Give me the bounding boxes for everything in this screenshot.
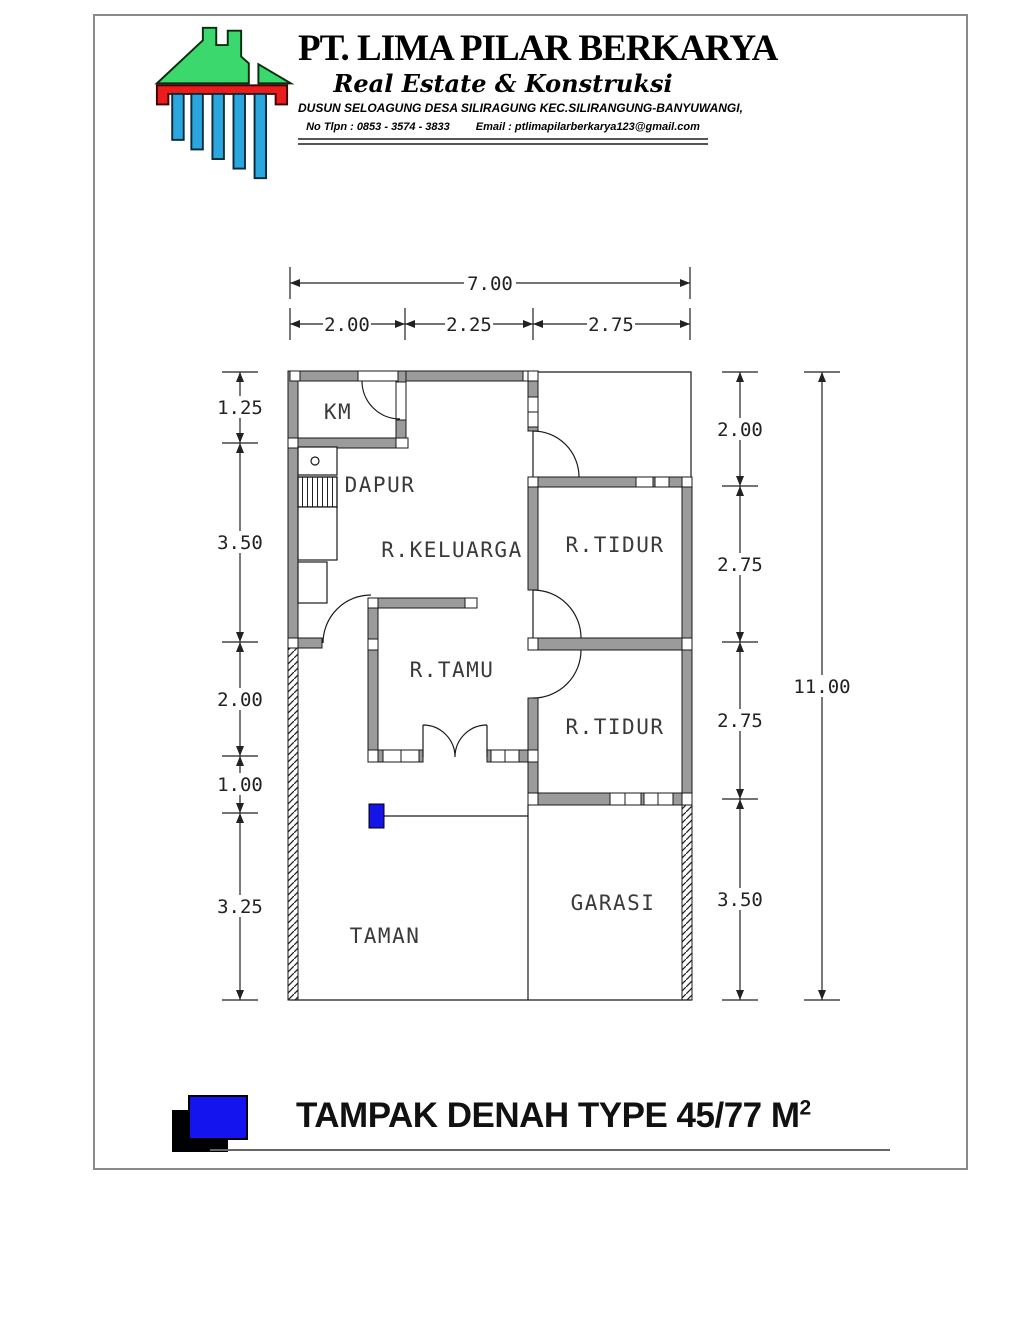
dim-top-1: 2.25	[446, 314, 492, 336]
dim-left-2: 2.00	[217, 689, 263, 711]
footer-underline	[210, 1149, 890, 1151]
km-door-opening	[396, 382, 406, 420]
room-label-taman: TAMAN	[350, 924, 421, 948]
km-door-arc	[362, 381, 400, 419]
room-label-tidur2: R.TIDUR	[565, 715, 664, 739]
back-door-arc	[533, 431, 579, 477]
company-name: PT. LIMA PILAR BERKARYA	[298, 30, 708, 69]
room-label-tamu: R.TAMU	[410, 658, 495, 682]
dim-left-4: 3.25	[217, 896, 263, 918]
dim-left-3: 1.00	[217, 774, 263, 796]
header-divider	[298, 138, 708, 145]
tidur1-door-arc	[533, 590, 581, 638]
tidur2-door-arc	[533, 650, 581, 698]
logo-roof-right	[258, 64, 291, 83]
dim-top-0: 2.00	[324, 314, 370, 336]
room-label-keluarga: R.KELUARGA	[381, 538, 522, 562]
company-phone: No Tlpn : 0853 - 3574 - 3833	[306, 121, 450, 133]
document-page: PT. LIMA PILAR BERKARYA Real Estate & Ko…	[0, 0, 1024, 1325]
room-label-km: KM	[324, 400, 352, 424]
drawing-title-superscript: 2	[800, 1096, 811, 1119]
dim-height-total: 11.00	[793, 676, 850, 698]
dim-left-0: 1.25	[217, 397, 263, 419]
door-arcs	[323, 381, 581, 757]
room-label-dapur: DAPUR	[345, 473, 416, 497]
kitchen-cabinet	[298, 562, 327, 603]
logo-roof	[157, 28, 249, 84]
hatched-walls	[288, 648, 692, 1000]
km-door-leaf	[358, 371, 398, 381]
letterhead: PT. LIMA PILAR BERKARYA Real Estate & Ko…	[298, 30, 708, 145]
entrance-double-door	[423, 725, 487, 757]
drawing-title-text: TAMPAK DENAH TYPE 45/77 M	[296, 1096, 800, 1135]
floor-plan-drawing: 7.00 2.00 2.25 2.75 1.25 3.50 2.00 1.00 …	[180, 245, 880, 1025]
wall-openings	[288, 371, 692, 805]
pillar-marker	[369, 804, 384, 828]
drawing-title: TAMPAK DENAH TYPE 45/77 M2	[296, 1096, 811, 1136]
sink-drain	[311, 457, 319, 465]
company-email: Email : ptlimapilarberkarya123@gmail.com	[476, 121, 700, 133]
walls	[288, 371, 692, 805]
dim-left-1: 3.50	[217, 532, 263, 554]
company-tagline: Real Estate & Konstruksi	[298, 69, 708, 98]
company-logo	[146, 24, 298, 182]
window	[655, 477, 669, 487]
dim-right-0: 2.00	[717, 419, 763, 441]
room-label-tidur1: R.TIDUR	[565, 533, 664, 557]
dim-top-2: 2.75	[588, 314, 634, 336]
dim-top-total: 7.00	[467, 273, 513, 295]
footer-blue-square	[188, 1095, 248, 1140]
logo-pillars	[172, 94, 266, 178]
window	[636, 477, 653, 487]
dapur-door-arc	[323, 595, 371, 643]
kitchen-counter	[298, 507, 337, 560]
room-label-garasi: GARASI	[571, 891, 656, 915]
dim-right-1: 2.75	[717, 554, 763, 576]
dim-right-2: 2.75	[717, 710, 763, 732]
company-address: DUSUN SELOAGUNG DESA SILIRAGUNG KEC.SILI…	[298, 101, 708, 115]
dim-right-3: 3.50	[717, 889, 763, 911]
kitchen-fixtures	[298, 447, 337, 603]
company-contact: No Tlpn : 0853 - 3574 - 3833Email : ptli…	[298, 121, 708, 133]
